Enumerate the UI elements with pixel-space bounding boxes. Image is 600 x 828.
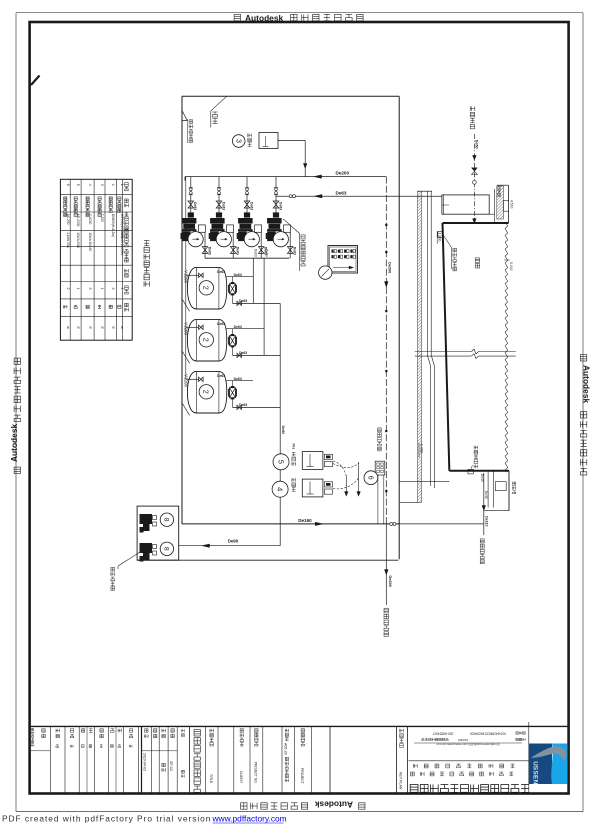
svg-text:De63: De63 [278, 202, 282, 210]
svg-text:1: 1 [76, 288, 80, 290]
svg-text:Autodesk: Autodesk [9, 424, 19, 463]
svg-text:4: 4 [88, 184, 92, 186]
svg-text:De160: De160 [298, 518, 312, 523]
svg-text:De63: De63 [234, 273, 242, 277]
svg-text:PH: PH [291, 443, 296, 449]
svg-text:2: 2 [111, 184, 115, 186]
svg-text:-1.400: -1.400 [419, 443, 423, 453]
svg-text:De90: De90 [228, 538, 239, 543]
svg-text:DN800(H=1.2m): DN800(H=1.2m) [111, 214, 115, 237]
svg-text:15A/h 25W: 15A/h 25W [76, 232, 80, 248]
svg-text:0.55kW 1N220V: 0.55kW 1N220V [120, 232, 124, 256]
svg-text:2: 2 [202, 286, 211, 290]
svg-text:5.000: 5.000 [509, 262, 513, 271]
svg-text:8: 8 [163, 547, 170, 551]
svg-text:CLIENT: CLIENT [239, 771, 243, 783]
svg-text:N: N [532, 780, 539, 785]
svg-text:De63: De63 [234, 325, 242, 329]
svg-text:6: 6 [367, 476, 374, 480]
svg-text:KD-2030: KD-2030 [76, 214, 80, 227]
svg-text:1: 1 [120, 184, 124, 186]
svg-text:4: 4 [276, 487, 285, 491]
svg-text:De110: De110 [485, 516, 489, 526]
svg-text:4.500: 4.500 [509, 200, 513, 209]
svg-text:De200: De200 [336, 170, 350, 175]
svg-text:De200: De200 [387, 262, 391, 273]
svg-text:De63: De63 [217, 270, 225, 274]
svg-text:2: 2 [66, 288, 70, 290]
svg-text:2: 2 [202, 390, 211, 394]
svg-text:5: 5 [76, 184, 80, 186]
svg-text:De63: De63 [217, 322, 225, 326]
svg-text:TITLE: TITLE [209, 774, 213, 784]
svg-text:A05-20: A05-20 [283, 743, 287, 755]
svg-text:De63: De63 [193, 202, 197, 210]
svg-text:De63: De63 [336, 191, 347, 196]
svg-text:2: 2 [202, 338, 211, 342]
svg-text:020-84254027: 020-84254027 [432, 732, 453, 736]
svg-text:3: 3 [234, 139, 241, 143]
svg-text:De63: De63 [254, 249, 258, 257]
svg-text:PDF created with pdfFactory Pr: PDF created with pdfFactory Pro trial ve… [2, 814, 211, 824]
svg-text:De63: De63 [293, 247, 297, 255]
svg-text:3: 3 [88, 288, 92, 290]
svg-text:PROJECT: PROJECT [300, 768, 304, 784]
svg-text:C-6250: C-6250 [88, 214, 92, 225]
svg-text:ZP-02: ZP-02 [169, 761, 173, 771]
svg-text:De63: De63 [217, 374, 225, 378]
svg-text:15A/h 1N24V: 15A/h 1N24V [88, 232, 92, 252]
svg-text:De63: De63 [249, 202, 253, 210]
svg-text:Autodesk: Autodesk [582, 365, 592, 404]
svg-text:Autodesk: Autodesk [315, 799, 354, 809]
svg-text:T-150: T-150 [100, 214, 104, 222]
svg-text:020-84254025 84254026: 020-84254025 84254026 [470, 732, 506, 736]
svg-text:2019-04-03: 2019-04-03 [143, 753, 147, 771]
svg-text:De63: De63 [221, 202, 225, 210]
svg-text:510305: 510305 [458, 738, 468, 742]
svg-text:4: 4 [120, 288, 124, 290]
svg-text:8: 8 [163, 518, 170, 522]
svg-text:3: 3 [111, 288, 115, 290]
svg-text:De63: De63 [207, 247, 211, 255]
svg-text:1.1kW 25A: 1.1kW 25A [66, 232, 70, 248]
svg-text:De200: De200 [388, 576, 392, 587]
svg-text:De63: De63 [234, 377, 242, 381]
svg-text:De63: De63 [236, 247, 240, 255]
svg-text:De50: De50 [475, 140, 479, 149]
svg-text:De35: De35 [484, 491, 488, 499]
svg-text:3: 3 [100, 184, 104, 186]
svg-text:PROJECT NO.: PROJECT NO. [254, 762, 258, 783]
svg-text:De40: De40 [480, 474, 484, 482]
svg-text:AS-200: AS-200 [66, 214, 70, 225]
svg-text:De63: De63 [239, 351, 247, 355]
svg-text:De63: De63 [264, 249, 268, 257]
svg-text:KEY PLAN: KEY PLAN [399, 772, 403, 790]
svg-text:-1.800: -1.800 [438, 231, 442, 241]
svg-text:1: 1 [100, 288, 104, 290]
svg-text:5: 5 [277, 460, 286, 464]
svg-text:De63: De63 [239, 299, 247, 303]
svg-text:6: 6 [66, 184, 70, 186]
svg-text:www.pdffactory.com: www.pdffactory.com [212, 814, 287, 824]
svg-text:De50: De50 [281, 426, 285, 435]
svg-text:De63: De63 [239, 403, 247, 407]
